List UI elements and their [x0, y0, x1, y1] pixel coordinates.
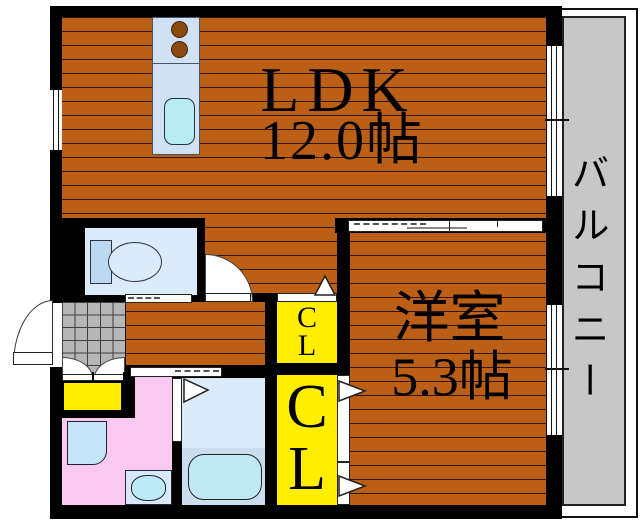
toilet-icon [108, 242, 162, 282]
wall-left [50, 6, 62, 517]
wall-bottom [50, 505, 562, 519]
stove-burners-icon [171, 41, 188, 58]
wall-segment [123, 372, 135, 412]
window-icon [50, 90, 62, 150]
window-tick [545, 119, 569, 121]
bathroom-door [172, 378, 182, 442]
wall-top [50, 6, 562, 17]
sliding-door-icon [348, 220, 543, 232]
washbasin-icon [131, 475, 166, 501]
step-line [125, 302, 126, 365]
stove-burners-icon [171, 21, 188, 38]
western-room-label: 洋室 [372, 290, 527, 348]
door-direction-icon [314, 275, 336, 296]
kitchen-counter [152, 17, 200, 155]
toilet-sliding-door [125, 294, 192, 303]
bathtub-icon [188, 454, 262, 500]
washing-machine-pan-icon [67, 421, 107, 465]
hall-door-panel [205, 293, 251, 302]
closet-large-label: C L [277, 376, 337, 500]
shoe-cabinet-icon [62, 381, 123, 412]
door-direction-icon [183, 378, 209, 403]
washroom-sliding-door [130, 367, 222, 377]
western-room-size-label: 5.3帖 [362, 348, 542, 406]
door-direction-icon [338, 475, 366, 497]
balcony-label: バルコニー [570, 128, 614, 438]
wall-segment [337, 218, 350, 375]
wall-segment [172, 442, 182, 505]
front-door-panel [13, 352, 53, 365]
kitchen-sink-icon [164, 98, 195, 145]
closet-small-label: C L [277, 304, 337, 360]
ldk-size-label: 12.0帖 [232, 112, 452, 170]
wall-segment [265, 295, 277, 505]
floor-plan: C L C L [0, 0, 640, 523]
